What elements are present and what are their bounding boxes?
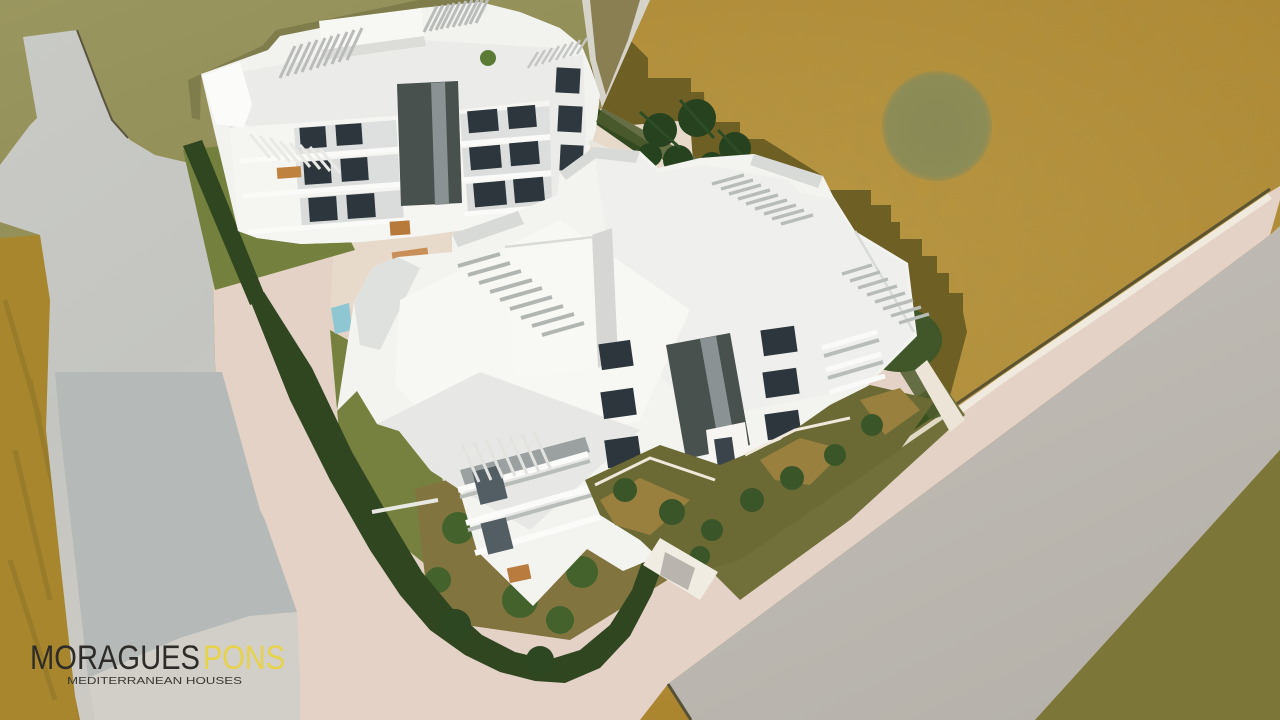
- svg-text:MEDITERRANEAN HOUSES: MEDITERRANEAN HOUSES: [67, 675, 242, 687]
- svg-text:PONS: PONS: [203, 639, 285, 677]
- svg-text:MORAGUES: MORAGUES: [30, 639, 200, 677]
